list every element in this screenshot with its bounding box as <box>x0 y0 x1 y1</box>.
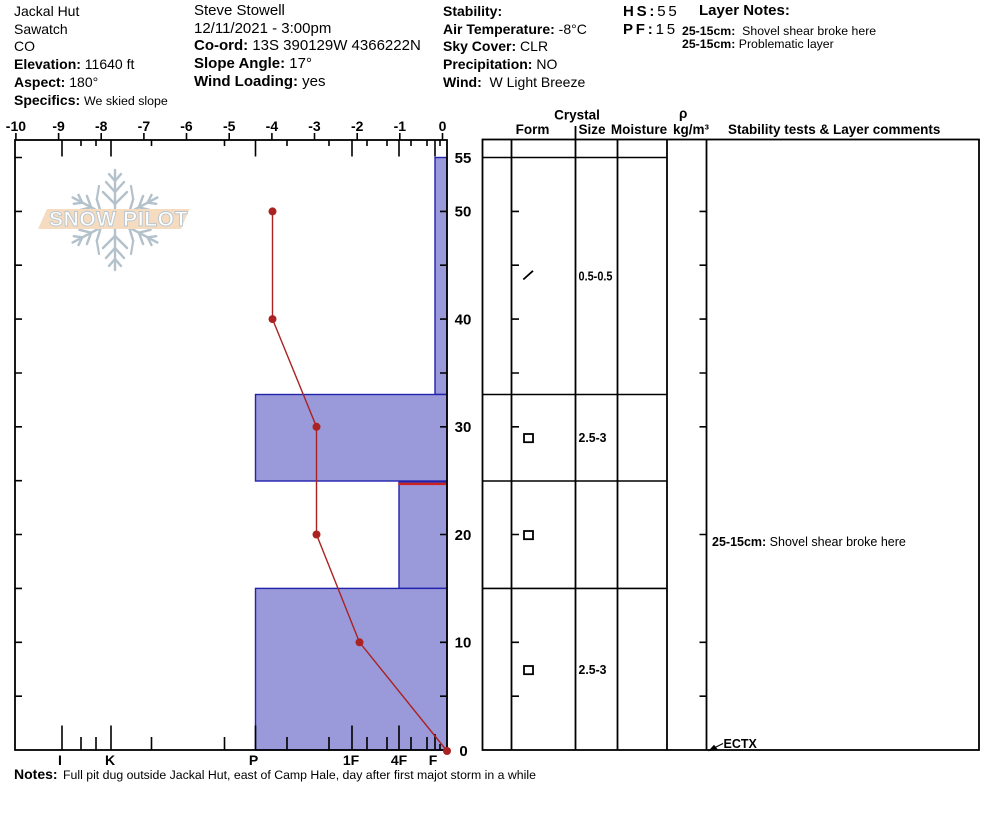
svg-text:K: K <box>105 752 115 768</box>
svg-text:-10: -10 <box>6 118 26 134</box>
svg-text:-2: -2 <box>351 118 364 134</box>
svg-text:25-15cm: Shovel shear broke he: 25-15cm: Shovel shear broke here <box>712 535 906 549</box>
svg-text:30: 30 <box>455 419 472 436</box>
svg-text:10: 10 <box>455 635 472 652</box>
svg-text:-8: -8 <box>95 118 108 134</box>
svg-text:55: 55 <box>455 150 472 167</box>
svg-text:P: P <box>249 752 258 768</box>
svg-text:Size: Size <box>578 122 606 137</box>
svg-text:-7: -7 <box>138 118 151 134</box>
svg-text:I: I <box>58 752 62 768</box>
svg-text:Notes:: Notes: <box>14 766 58 782</box>
svg-text:Stability tests & Layer commen: Stability tests & Layer comments <box>728 122 940 137</box>
svg-text:-4: -4 <box>266 118 279 134</box>
svg-text:4F: 4F <box>391 752 408 768</box>
svg-text:Moisture: Moisture <box>611 122 668 137</box>
svg-text:ECTX: ECTX <box>724 737 758 751</box>
svg-text:F: F <box>429 752 438 768</box>
svg-text:-6: -6 <box>180 118 193 134</box>
svg-text:0.5-0.5: 0.5-0.5 <box>579 270 613 284</box>
svg-text:SNOW PILOT: SNOW PILOT <box>49 208 188 231</box>
svg-text:-3: -3 <box>308 118 321 134</box>
svg-text:-5: -5 <box>223 118 236 134</box>
svg-text:Form: Form <box>516 122 550 137</box>
svg-text:2.5-3: 2.5-3 <box>579 431 607 445</box>
svg-text:ρ: ρ <box>679 106 687 121</box>
svg-text:-1: -1 <box>394 118 407 134</box>
svg-text:2.5-3: 2.5-3 <box>579 663 607 677</box>
svg-text:40: 40 <box>455 311 472 328</box>
svg-text:50: 50 <box>455 204 472 221</box>
svg-text:-9: -9 <box>52 118 65 134</box>
svg-text:Crystal: Crystal <box>554 108 600 123</box>
svg-text:0: 0 <box>459 743 467 760</box>
svg-text:Full pit dug outside Jackal Hu: Full pit dug outside Jackal Hut, east of… <box>63 768 536 782</box>
svg-text:kg/m³: kg/m³ <box>673 122 710 137</box>
svg-text:0: 0 <box>439 118 447 134</box>
svg-text:20: 20 <box>455 527 472 544</box>
svg-text:1F: 1F <box>343 752 360 768</box>
